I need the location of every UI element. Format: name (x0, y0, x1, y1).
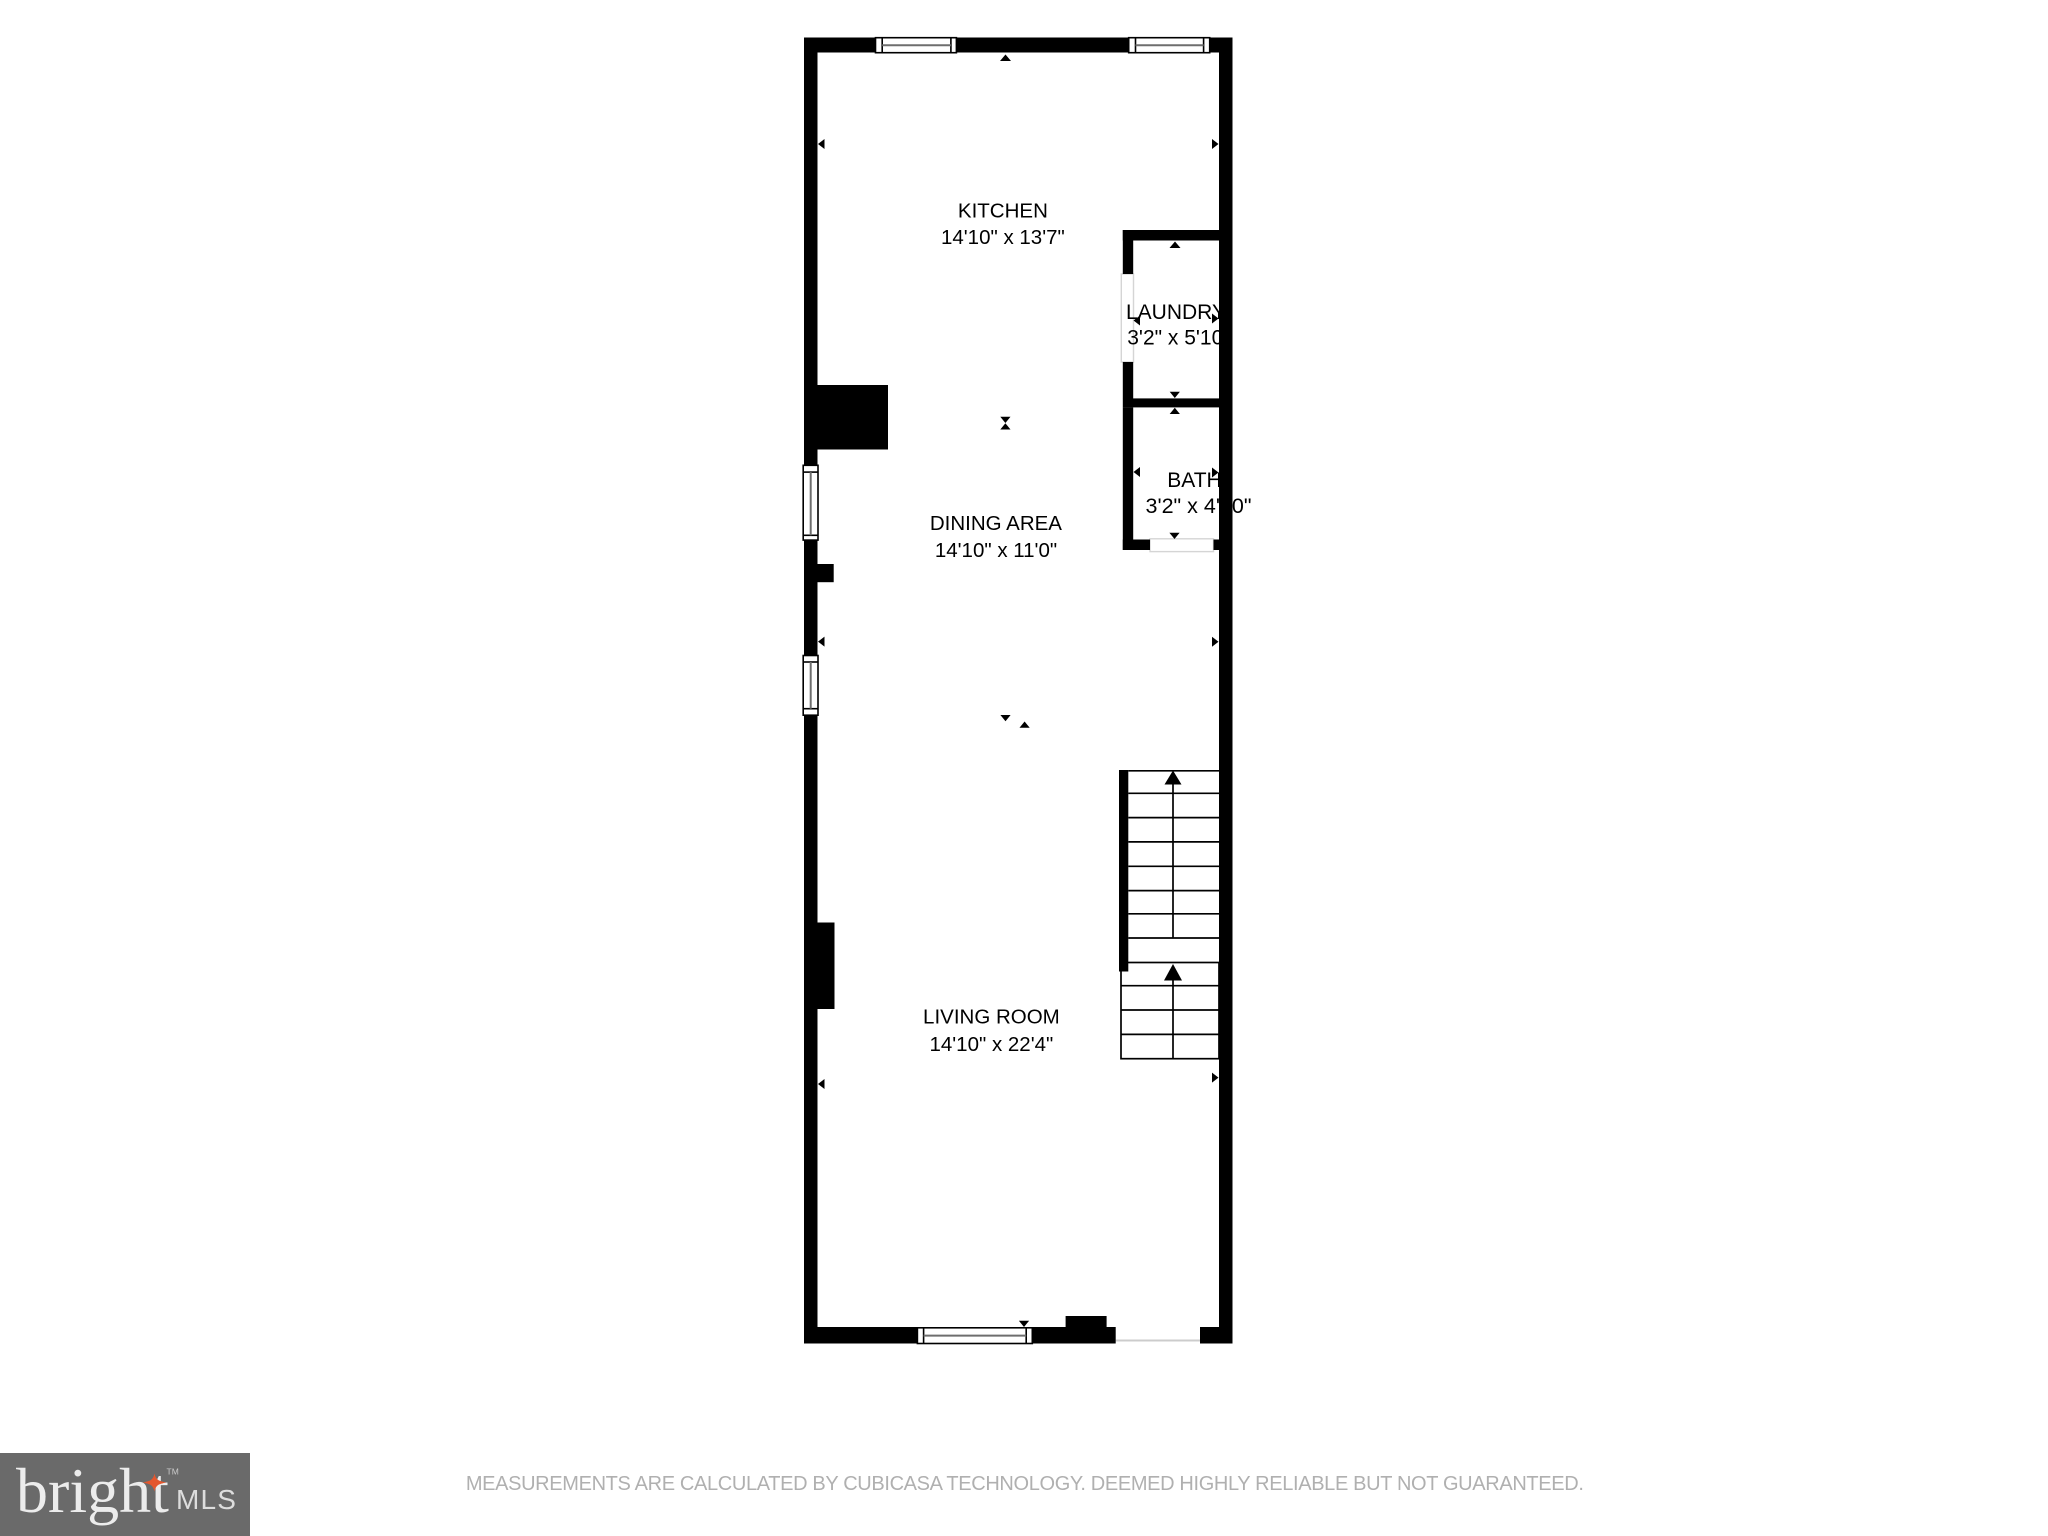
svg-text:14'10" x 22'4": 14'10" x 22'4" (929, 1033, 1053, 1056)
svg-text:14'10" x 13'7": 14'10" x 13'7" (941, 226, 1065, 249)
svg-text:14'10" x 11'0": 14'10" x 11'0" (935, 539, 1057, 562)
svg-text:DINING AREA: DINING AREA (930, 512, 1062, 535)
svg-text:MLS: MLS (176, 1484, 237, 1515)
svg-text:LAUNDRY: LAUNDRY (1126, 301, 1226, 324)
svg-text:MEASUREMENTS ARE CALCULATED BY: MEASUREMENTS ARE CALCULATED BY CUBICASA … (466, 1473, 1584, 1495)
svg-text:TM: TM (167, 1467, 179, 1477)
svg-text:3'2" x 5'10": 3'2" x 5'10" (1127, 327, 1231, 350)
svg-text:3'2" x 4'10": 3'2" x 4'10" (1146, 494, 1252, 518)
svg-text:KITCHEN: KITCHEN (958, 199, 1048, 222)
svg-text:bright: bright (16, 1455, 169, 1526)
svg-text:LIVING ROOM: LIVING ROOM (923, 1006, 1060, 1029)
